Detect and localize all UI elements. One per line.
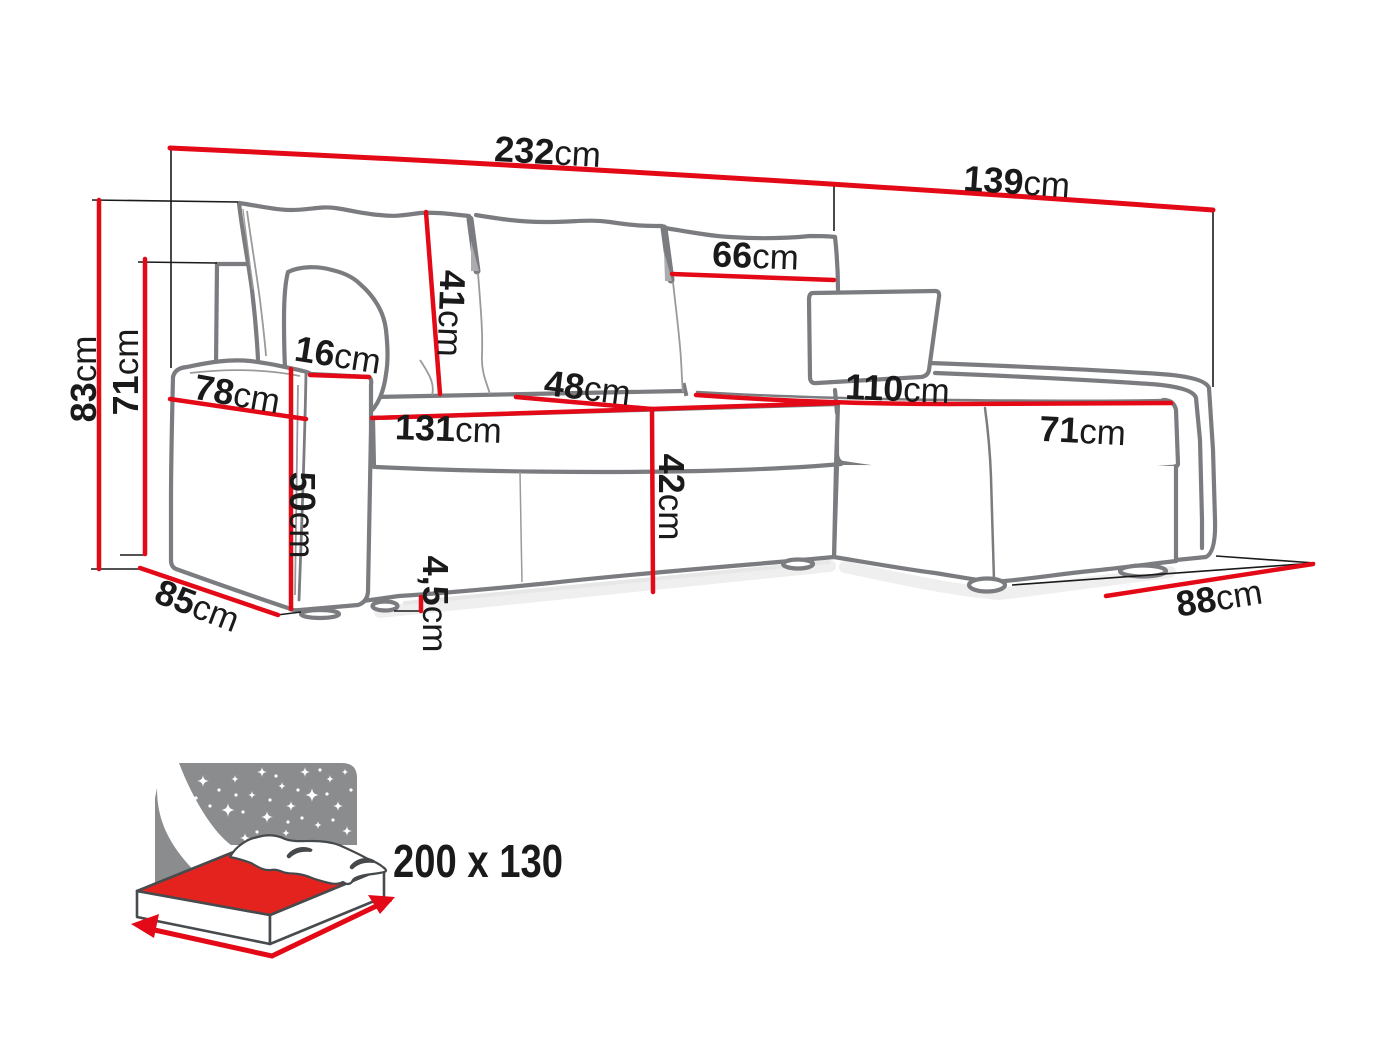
svg-text:88cm: 88cm [1173,571,1265,625]
svg-text:83cm: 83cm [63,336,104,423]
svg-text:71cm: 71cm [1038,408,1127,453]
svg-text:66cm: 66cm [711,233,799,277]
svg-text:41cm: 41cm [429,269,473,357]
svg-text:50cm: 50cm [282,472,323,559]
svg-text:4,5cm: 4,5cm [415,556,456,653]
svg-text:48cm: 48cm [542,362,633,413]
svg-text:200 x 130: 200 x 130 [393,835,563,887]
svg-text:131cm: 131cm [394,406,502,451]
svg-text:42cm: 42cm [651,454,692,541]
svg-text:71cm: 71cm [105,329,146,416]
svg-text:139cm: 139cm [962,157,1071,205]
svg-text:110cm: 110cm [844,366,950,412]
svg-text:232cm: 232cm [493,128,602,175]
